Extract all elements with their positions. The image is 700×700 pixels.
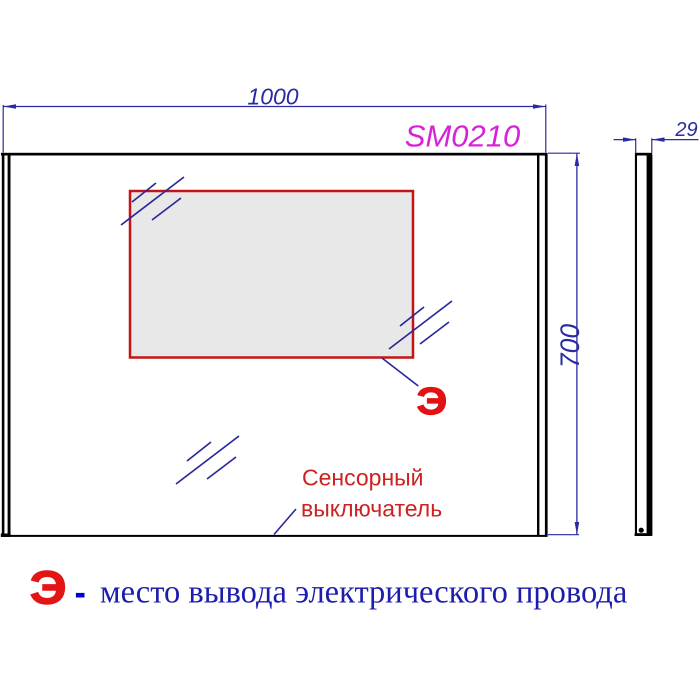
svg-text:1000: 1000 xyxy=(247,84,298,110)
svg-text:Э: Э xyxy=(417,379,448,422)
svg-text:Э: Э xyxy=(30,563,67,614)
svg-text:место вывода электрического пр: место вывода электрического провода xyxy=(100,575,627,611)
svg-text:выключатель: выключатель xyxy=(301,496,442,522)
svg-text:29: 29 xyxy=(674,119,697,141)
svg-text:700: 700 xyxy=(555,324,585,368)
svg-text:SM0210: SM0210 xyxy=(405,118,520,153)
svg-text:Сенсорный: Сенсорный xyxy=(302,465,424,491)
